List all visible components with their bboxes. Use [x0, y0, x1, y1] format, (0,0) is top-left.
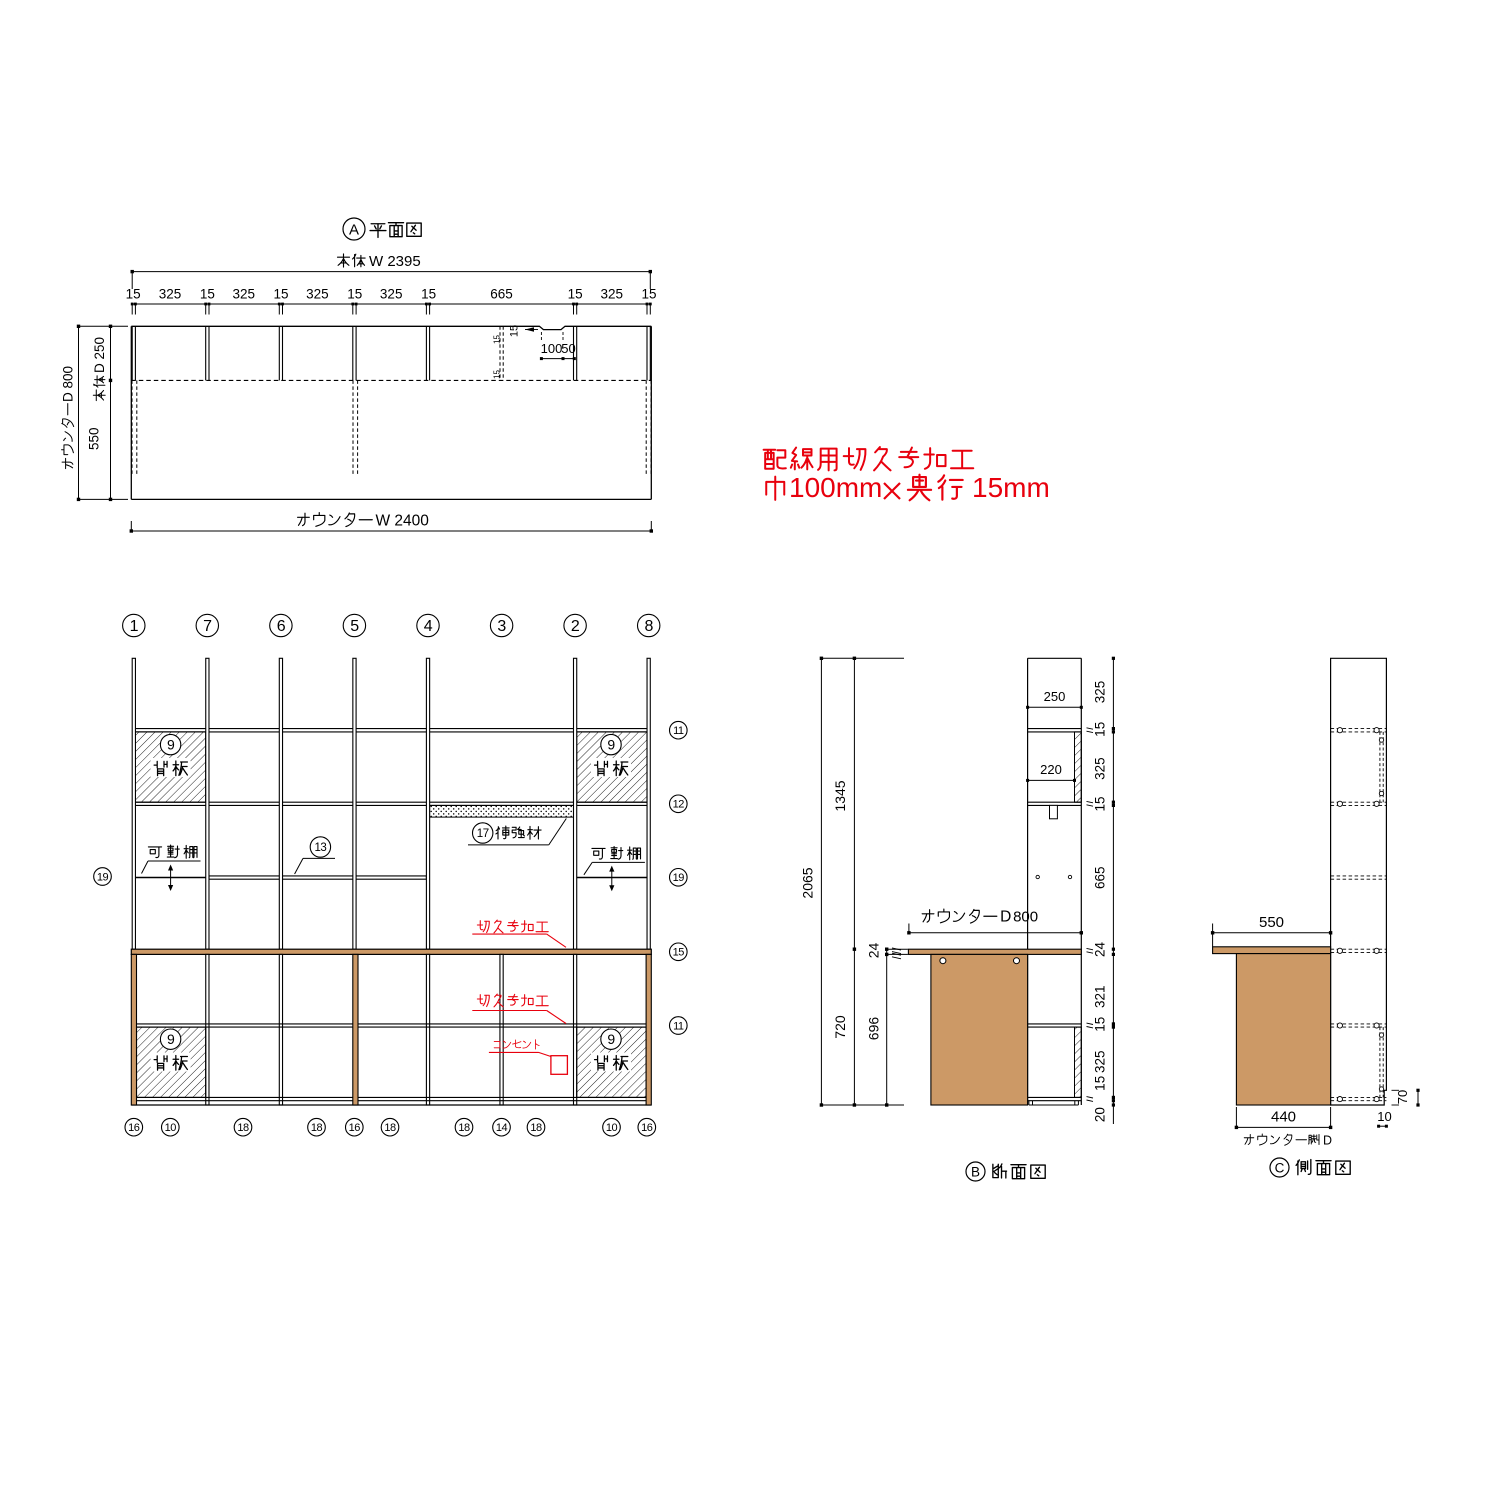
svg-text:W 2395: W 2395: [369, 253, 421, 270]
svg-text:10: 10: [606, 1122, 618, 1134]
svg-text:550: 550: [87, 427, 102, 450]
svg-text:1: 1: [130, 618, 139, 635]
svg-text:6: 6: [277, 618, 286, 635]
svg-text:18: 18: [530, 1122, 542, 1134]
svg-text:15: 15: [347, 287, 362, 302]
svg-text:13: 13: [315, 842, 327, 854]
svg-text:W 2400: W 2400: [376, 513, 430, 530]
svg-text:15: 15: [1093, 722, 1108, 737]
svg-text:10: 10: [1377, 1109, 1391, 1124]
svg-text:15: 15: [421, 287, 436, 302]
svg-text:18: 18: [458, 1122, 470, 1134]
svg-text:9: 9: [607, 1031, 615, 1047]
svg-text:15: 15: [200, 287, 215, 302]
svg-text:C: C: [1275, 1161, 1285, 1176]
svg-text:325: 325: [1093, 757, 1108, 780]
svg-text:325: 325: [159, 287, 182, 302]
svg-text:696: 696: [866, 1017, 882, 1041]
svg-text:550: 550: [1259, 914, 1284, 931]
svg-text:D 250: D 250: [92, 337, 107, 373]
svg-text:665: 665: [1093, 866, 1108, 889]
svg-text:100mm: 100mm: [789, 472, 882, 503]
svg-text:250: 250: [1044, 689, 1066, 704]
svg-text:B: B: [971, 1165, 980, 1180]
svg-text:15: 15: [641, 287, 656, 302]
svg-text:18: 18: [311, 1122, 323, 1134]
svg-text:4: 4: [424, 618, 433, 635]
svg-text:15: 15: [1093, 796, 1108, 811]
svg-text:220: 220: [1040, 762, 1062, 777]
svg-text:9: 9: [167, 1031, 175, 1047]
svg-text:15: 15: [273, 287, 288, 302]
svg-text:2065: 2065: [800, 867, 816, 898]
svg-text:18: 18: [384, 1122, 396, 1134]
svg-text:720: 720: [832, 1015, 848, 1039]
svg-text:14: 14: [496, 1122, 508, 1134]
svg-text:100: 100: [541, 341, 563, 356]
svg-text:A: A: [349, 222, 359, 239]
svg-text:7: 7: [203, 618, 212, 635]
svg-text:10: 10: [165, 1122, 177, 1134]
svg-text:D: D: [1000, 909, 1011, 926]
svg-text:19: 19: [673, 872, 685, 884]
svg-text:2: 2: [571, 618, 580, 635]
svg-text:9: 9: [607, 737, 615, 753]
svg-text:18: 18: [237, 1122, 249, 1134]
svg-text:11: 11: [673, 725, 684, 737]
svg-text:665: 665: [490, 287, 513, 302]
svg-text:16: 16: [641, 1122, 653, 1134]
svg-text:325: 325: [1093, 1050, 1108, 1073]
svg-text:15mm: 15mm: [972, 472, 1050, 503]
svg-text:321: 321: [1093, 985, 1108, 1008]
svg-text:325: 325: [601, 287, 624, 302]
svg-text:70: 70: [1395, 1090, 1410, 1104]
svg-text:5: 5: [350, 618, 359, 635]
svg-text:325: 325: [233, 287, 256, 302]
svg-text:15: 15: [509, 325, 521, 337]
svg-text:24: 24: [1093, 942, 1108, 958]
svg-text:16: 16: [349, 1122, 361, 1134]
svg-text:24: 24: [866, 943, 882, 959]
svg-text:1345: 1345: [832, 780, 848, 811]
svg-text:9: 9: [167, 737, 175, 753]
svg-text:D: D: [1323, 1134, 1332, 1148]
svg-text:15: 15: [1093, 1017, 1108, 1032]
svg-text:16: 16: [128, 1122, 140, 1134]
svg-text:440: 440: [1271, 1109, 1296, 1126]
svg-text:325: 325: [306, 287, 329, 302]
svg-text:20: 20: [1093, 1107, 1108, 1122]
svg-text:15: 15: [568, 287, 583, 302]
svg-text:800: 800: [1013, 909, 1038, 926]
svg-text:15: 15: [126, 287, 141, 302]
svg-text:325: 325: [380, 287, 403, 302]
svg-text:15: 15: [493, 335, 502, 344]
svg-text:325: 325: [1093, 681, 1108, 704]
svg-text:11: 11: [673, 1020, 684, 1032]
svg-text:3: 3: [497, 618, 506, 635]
svg-text:50: 50: [561, 341, 575, 356]
svg-text:17: 17: [477, 828, 489, 840]
svg-text:15: 15: [493, 370, 502, 379]
svg-text:8: 8: [644, 618, 653, 635]
svg-text:15: 15: [673, 947, 685, 959]
svg-text:19: 19: [97, 871, 109, 883]
svg-text:15: 15: [1093, 1076, 1108, 1091]
svg-text:D 800: D 800: [61, 366, 76, 402]
svg-text:12: 12: [673, 799, 685, 811]
